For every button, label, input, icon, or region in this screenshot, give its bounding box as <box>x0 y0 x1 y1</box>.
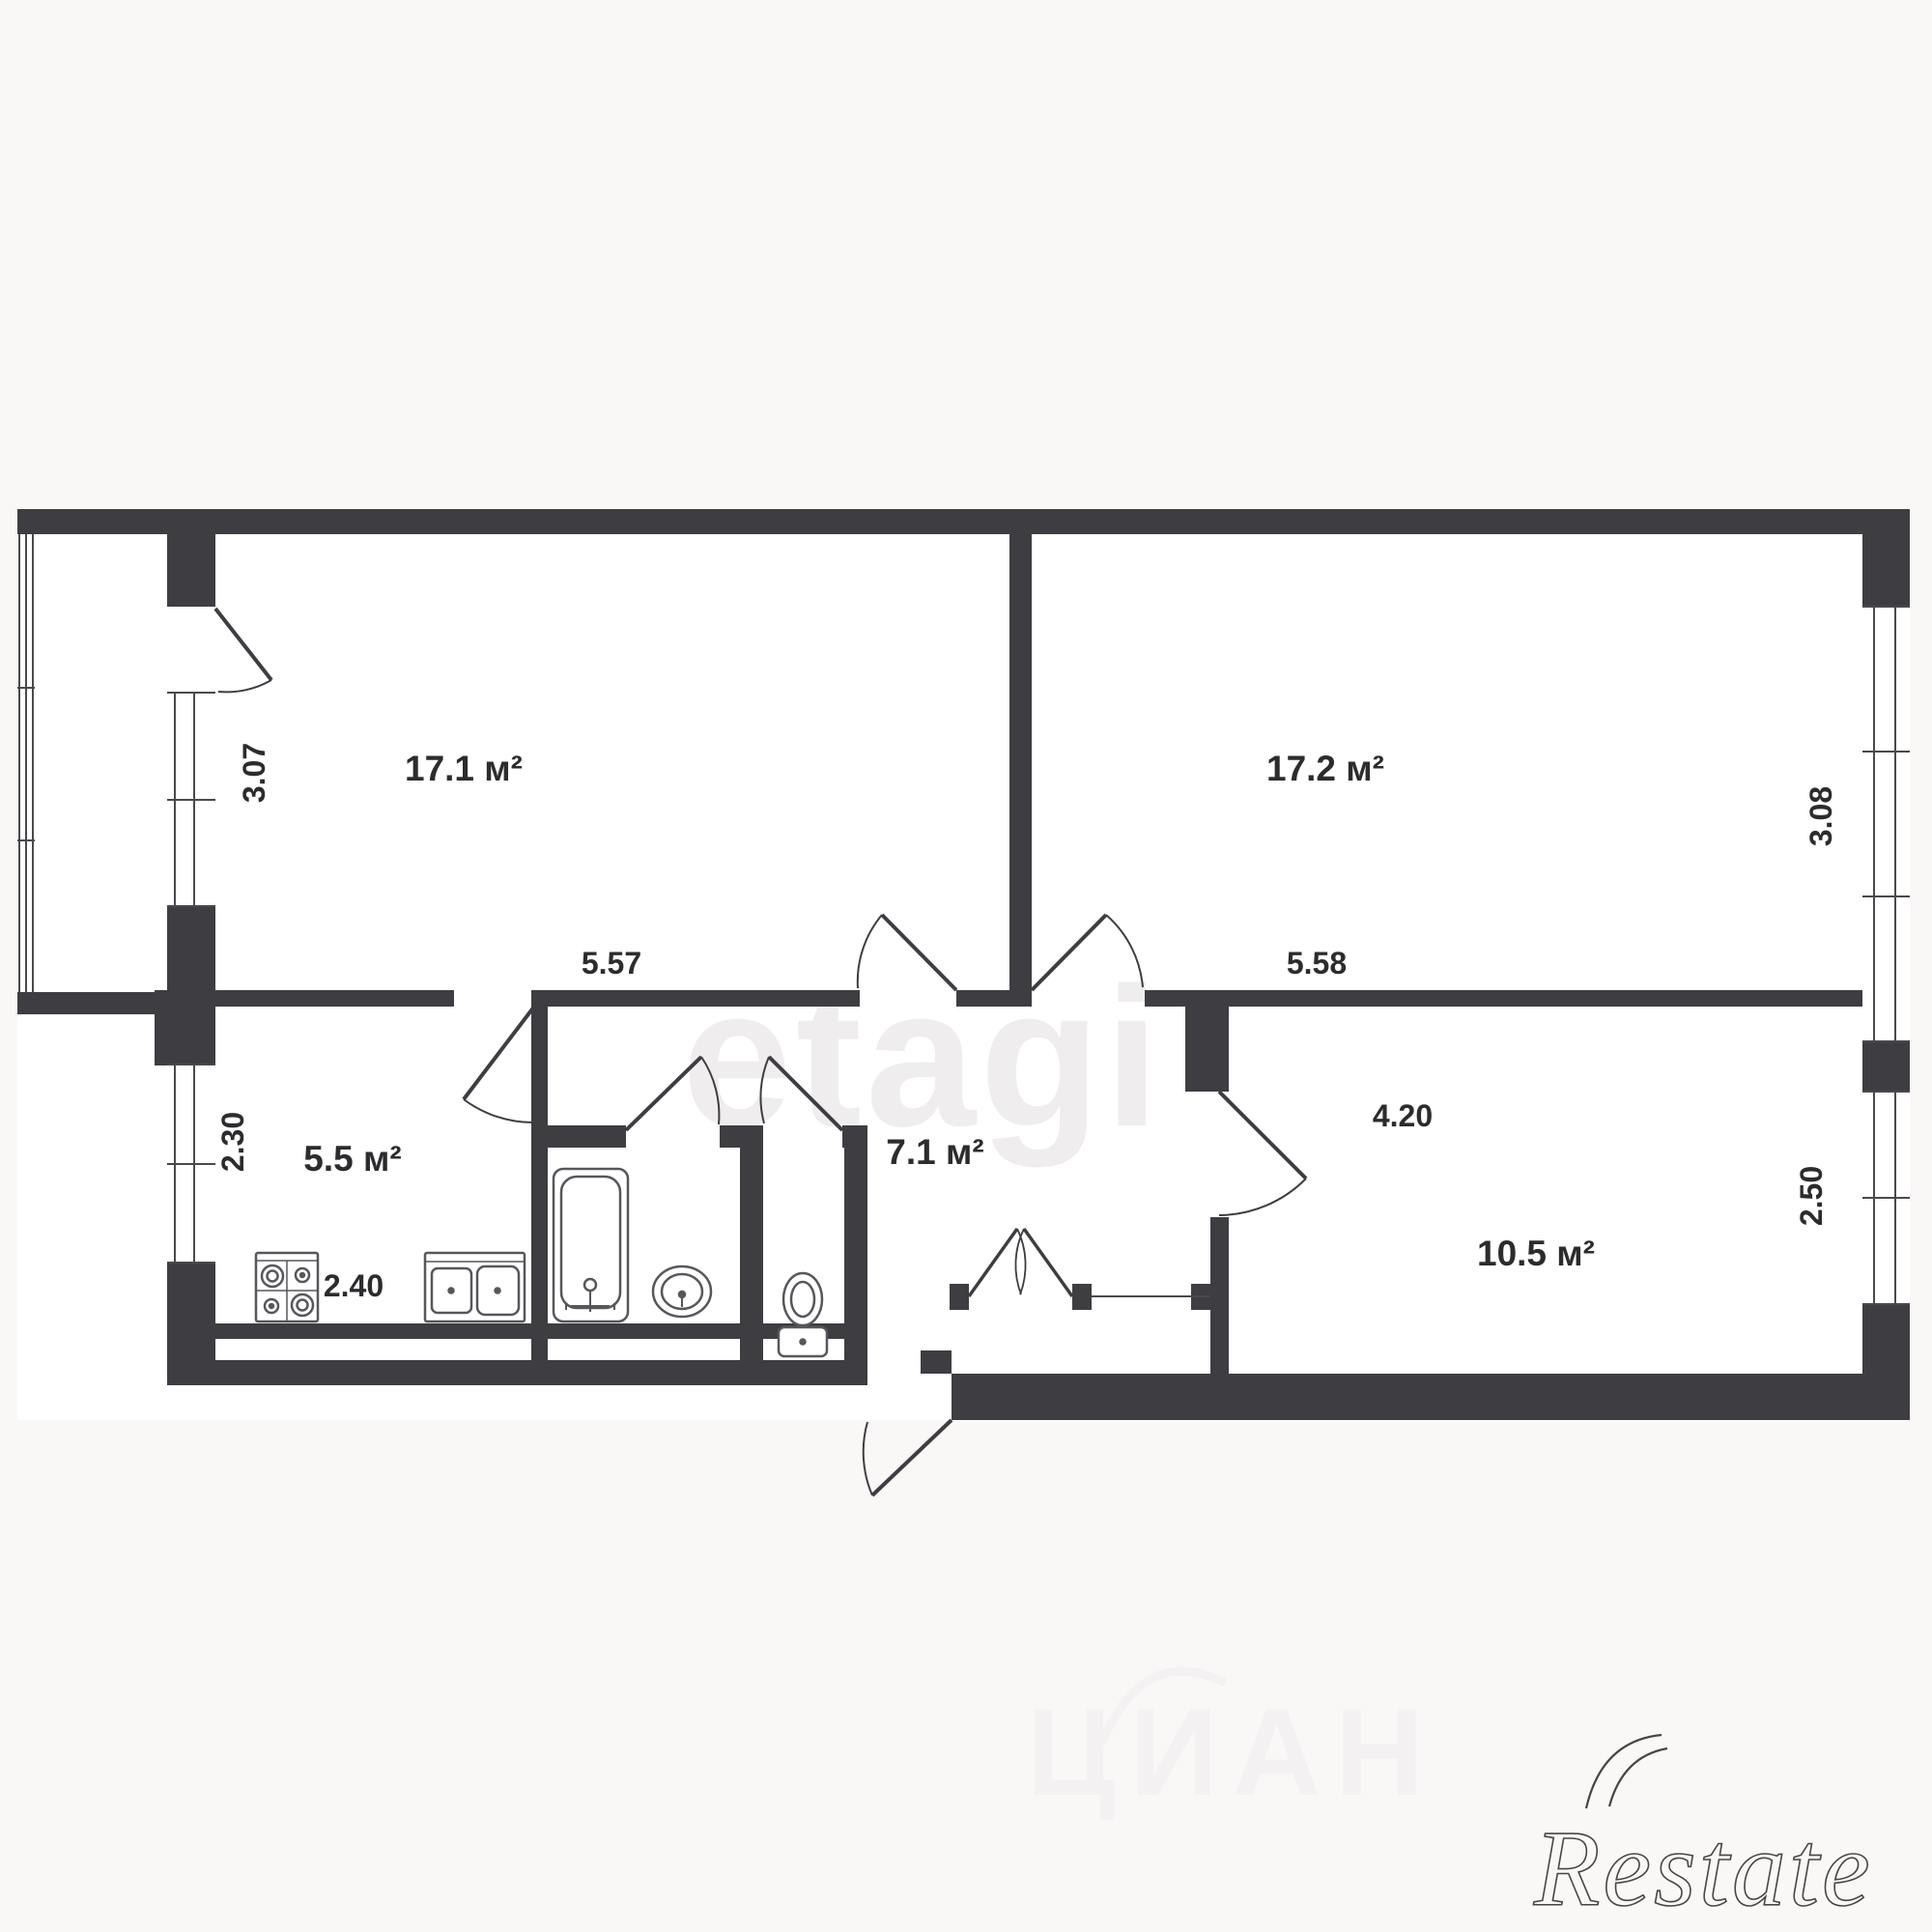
wall-toilet-top-c <box>842 1125 867 1148</box>
room-label-17-1: 17.1 м² <box>405 749 523 788</box>
dim-5-57: 5.57 <box>582 946 641 980</box>
wall-bath-top-a <box>531 1125 626 1148</box>
wall-10-5-left <box>1210 1217 1229 1374</box>
dim-5-58: 5.58 <box>1287 946 1347 980</box>
watermark-cian: ЦИАН <box>1026 1684 1437 1822</box>
dim-2-30: 2.30 <box>215 1112 250 1172</box>
watermark-restate: Restate <box>1533 1809 1873 1929</box>
washbasin-icon <box>653 1266 711 1317</box>
room-label-hallway: 7.1 м² <box>886 1132 983 1172</box>
wall-middle-divider <box>1009 534 1032 1007</box>
wall-entrance-jamb <box>921 1350 952 1374</box>
wall-top <box>17 509 1910 534</box>
wall-closet-jamb-left <box>950 1284 969 1310</box>
wall-bottom-right <box>952 1374 1910 1420</box>
wall-kitchen-top <box>198 990 454 1007</box>
opening-window-right-a <box>1862 607 1910 1041</box>
balcony-glazing <box>17 534 35 992</box>
floor-plan: etagi <box>0 0 1932 1932</box>
wall-17-1-left-bottom <box>167 906 215 993</box>
wall-bath-top-b <box>720 1125 763 1148</box>
room-label-10-5: 10.5 м² <box>1477 1234 1595 1273</box>
dim-2-40: 2.40 <box>324 1268 384 1303</box>
wall-jog-block <box>1185 990 1229 1092</box>
wall-toilet-right <box>844 1148 867 1374</box>
wall-closet-jamb-right <box>1072 1284 1092 1310</box>
wall-kitchen-left-top-stub <box>167 1014 215 1065</box>
wall-divider-17-2-10-5 <box>1229 990 1862 1007</box>
dim-3-07: 3.07 <box>237 743 271 803</box>
wall-17-1-left-top-stub <box>167 534 215 607</box>
wall-corridor-top-a <box>548 990 860 1007</box>
wall-corridor-top-b <box>956 990 1009 1007</box>
wall-corridor-top-c <box>1145 990 1185 1007</box>
dim-3-08: 3.08 <box>1804 786 1838 846</box>
room-label-17-2: 17.2 м² <box>1266 749 1384 788</box>
room-label-kitchen: 5.5 м² <box>303 1139 401 1179</box>
wall-right-pier <box>1862 1041 1910 1092</box>
dim-2-50: 2.50 <box>1794 1166 1829 1226</box>
wall-bath-toilet-divider <box>740 1148 763 1362</box>
dim-4-20: 4.20 <box>1373 1098 1433 1133</box>
wall-bottom-left-outer <box>167 1360 867 1385</box>
stove-icon <box>256 1253 318 1321</box>
wall-kitchen-right <box>531 990 548 1385</box>
kitchen-sink-icon <box>425 1253 525 1321</box>
bathtub-icon <box>554 1169 628 1321</box>
wall-right-top-stub <box>1862 534 1910 607</box>
toilet-icon <box>779 1273 827 1356</box>
opening-balcony-door <box>167 607 215 693</box>
